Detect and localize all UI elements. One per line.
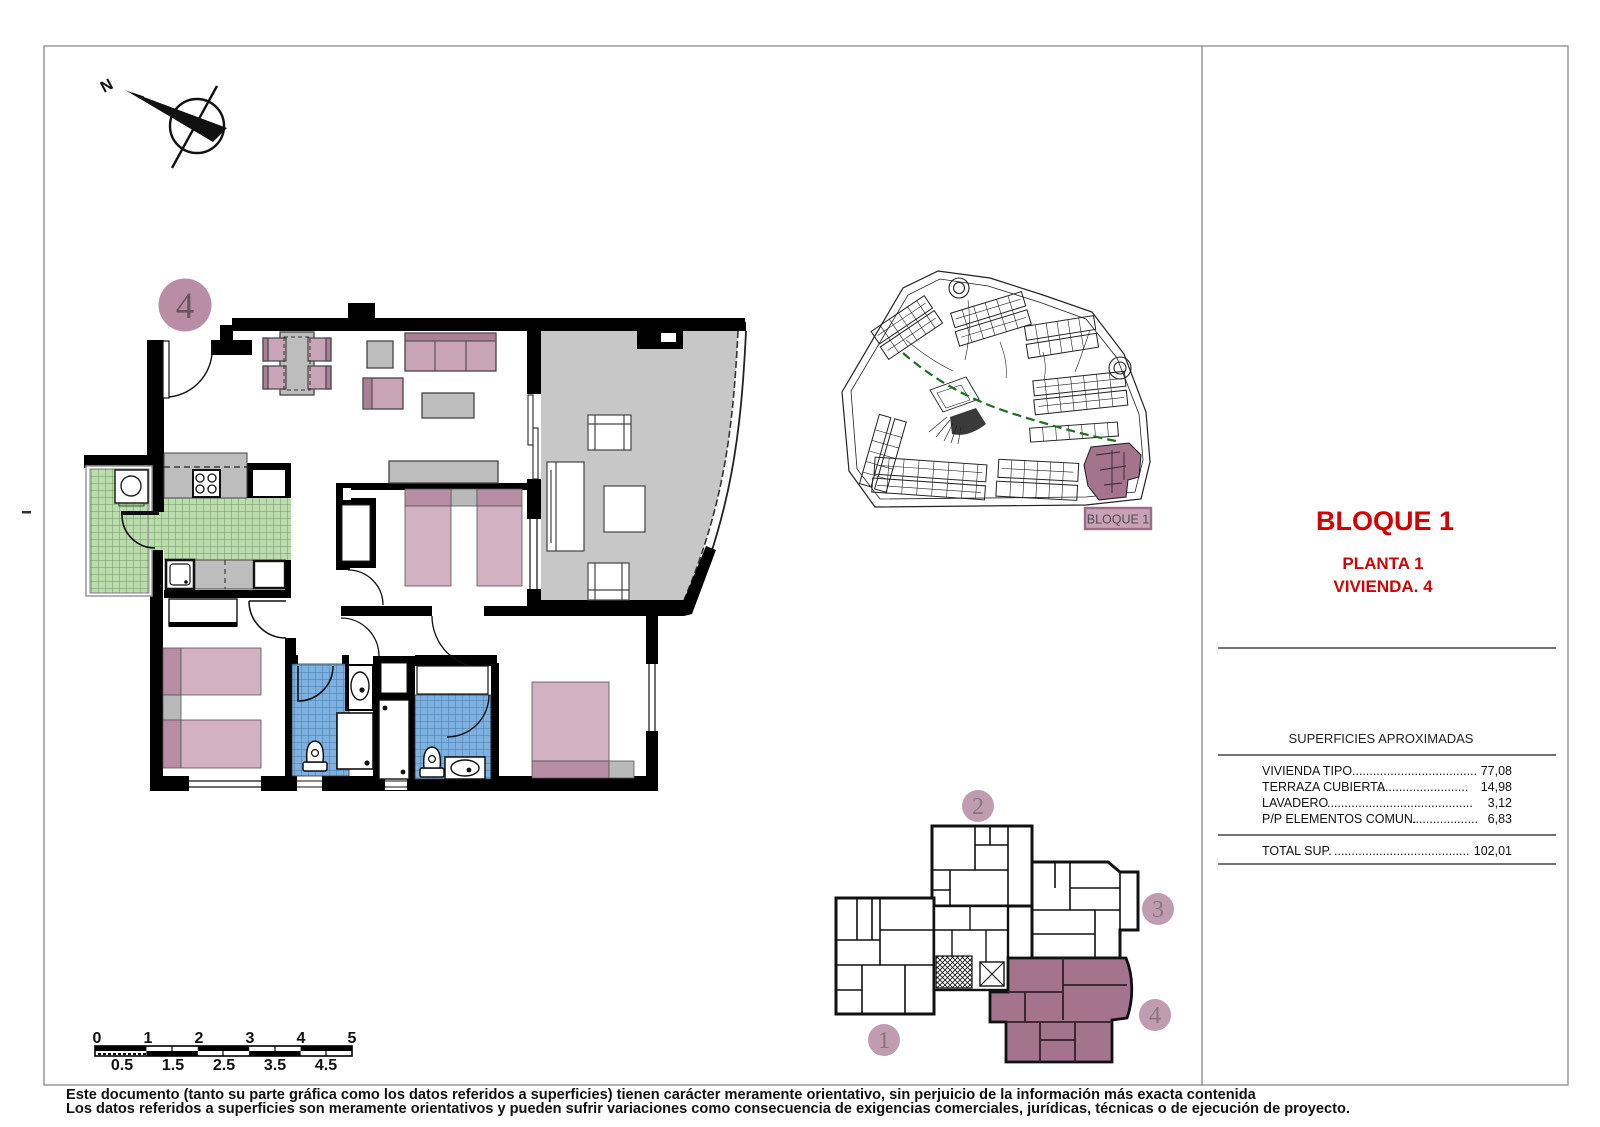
svg-text:1.5: 1.5 <box>162 1057 184 1074</box>
svg-text:2: 2 <box>195 1030 204 1047</box>
svg-text:4.5: 4.5 <box>315 1057 337 1074</box>
svg-text:0.5: 0.5 <box>111 1057 133 1074</box>
svg-text:..............................: .................................... <box>1352 764 1477 778</box>
svg-text:SUPERFICIES APROXIMADAS: SUPERFICIES APROXIMADAS <box>1289 731 1474 746</box>
svg-text:..............................: ....................................... <box>1334 844 1469 858</box>
svg-text:VIVIENDA TIPO: VIVIENDA TIPO <box>1262 764 1352 778</box>
svg-text:...................: ................... <box>1412 812 1478 826</box>
svg-text:Los datos referidos a superfic: Los datos referidos a superficies son me… <box>66 1101 1350 1117</box>
svg-text:6,83: 6,83 <box>1488 812 1512 826</box>
svg-text:VIVIENDA. 4: VIVIENDA. 4 <box>1333 577 1433 596</box>
svg-text:1: 1 <box>878 1028 890 1054</box>
svg-text:BLOQUE 1: BLOQUE 1 <box>1316 506 1454 536</box>
svg-text:4: 4 <box>297 1030 306 1047</box>
svg-text:BLOQUE 1: BLOQUE 1 <box>1087 513 1150 527</box>
svg-text:..............................: ........................................… <box>1327 796 1473 810</box>
svg-text:102,01: 102,01 <box>1474 844 1512 858</box>
svg-text:LAVADERO: LAVADERO <box>1262 796 1329 810</box>
svg-text:3: 3 <box>1152 897 1164 923</box>
svg-text:14,98: 14,98 <box>1481 780 1512 794</box>
svg-text:2: 2 <box>972 794 984 820</box>
svg-text:4: 4 <box>1149 1003 1161 1029</box>
svg-text:..........................: .......................... <box>1378 780 1468 794</box>
svg-text:3,12: 3,12 <box>1488 796 1512 810</box>
svg-text:4: 4 <box>176 286 195 327</box>
svg-text:PLANTA 1: PLANTA 1 <box>1342 554 1423 573</box>
svg-text:TOTAL SUP.: TOTAL SUP. <box>1262 844 1332 858</box>
svg-text:TERRAZA CUBIERTA: TERRAZA CUBIERTA <box>1262 780 1386 794</box>
svg-text:2.5: 2.5 <box>213 1057 235 1074</box>
svg-text:0: 0 <box>93 1030 102 1047</box>
svg-text:77,08: 77,08 <box>1481 764 1512 778</box>
svg-text:5: 5 <box>348 1030 357 1047</box>
svg-text:1: 1 <box>144 1030 153 1047</box>
svg-text:3: 3 <box>246 1030 255 1047</box>
svg-text:3.5: 3.5 <box>264 1057 286 1074</box>
svg-text:P/P ELEMENTOS COMUN.: P/P ELEMENTOS COMUN. <box>1262 812 1416 826</box>
